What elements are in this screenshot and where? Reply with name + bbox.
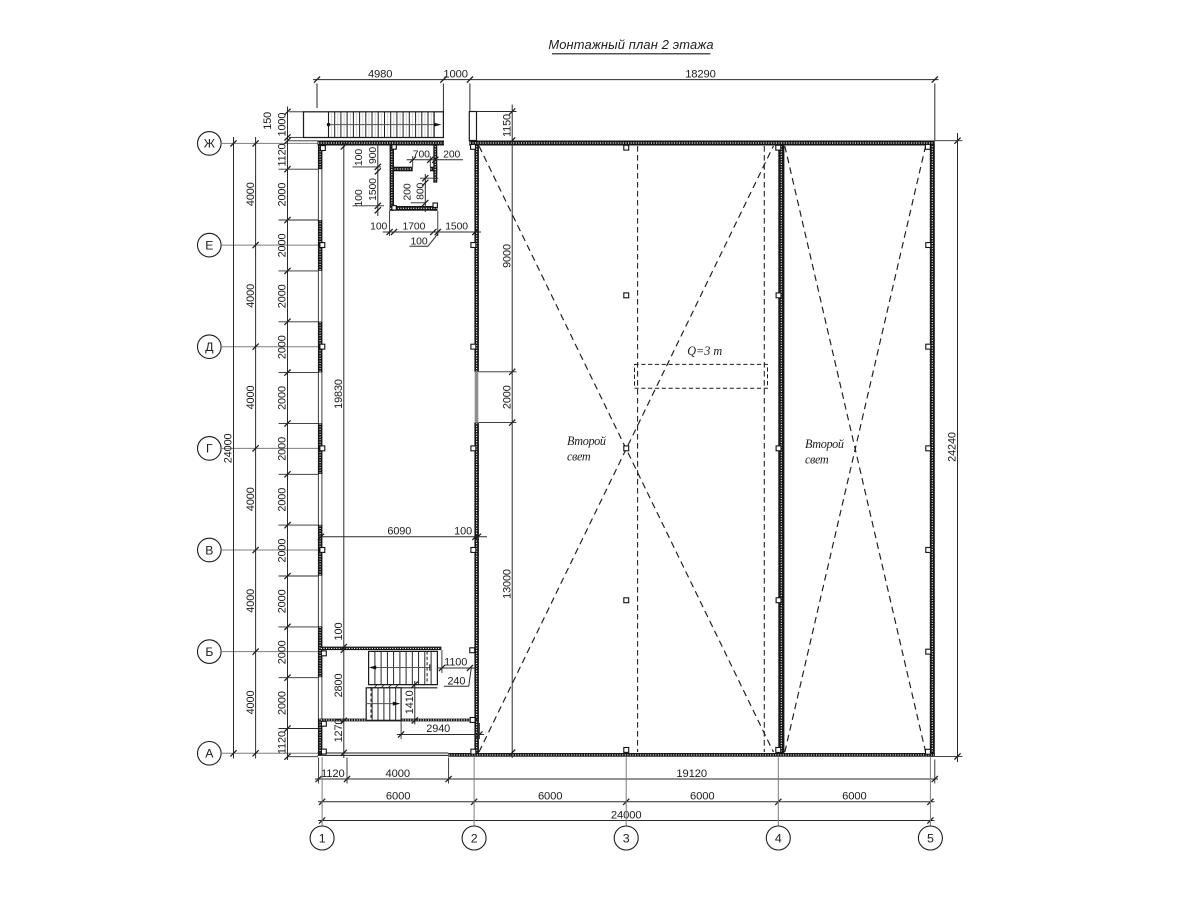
svg-text:Е: Е: [205, 238, 213, 252]
svg-text:4000: 4000: [245, 691, 257, 715]
svg-text:1410: 1410: [404, 690, 416, 714]
svg-text:6000: 6000: [538, 791, 563, 803]
svg-text:4000: 4000: [245, 487, 257, 511]
svg-text:2000: 2000: [277, 335, 289, 359]
svg-text:2000: 2000: [277, 284, 289, 308]
svg-text:100: 100: [354, 189, 365, 206]
svg-text:3: 3: [623, 831, 630, 845]
svg-text:А: А: [205, 747, 214, 761]
svg-text:В: В: [205, 543, 213, 557]
svg-text:2000: 2000: [277, 539, 289, 563]
svg-text:100: 100: [370, 222, 387, 233]
svg-text:1500: 1500: [445, 222, 468, 233]
svg-text:Ж: Ж: [204, 137, 216, 151]
svg-text:700: 700: [413, 150, 430, 161]
svg-text:4: 4: [775, 831, 782, 845]
svg-text:9000: 9000: [501, 244, 513, 268]
svg-text:2940: 2940: [426, 723, 450, 735]
svg-text:2000: 2000: [277, 183, 289, 207]
svg-text:200: 200: [403, 183, 414, 200]
svg-text:2000: 2000: [277, 589, 289, 613]
svg-text:2000: 2000: [277, 640, 289, 664]
svg-text:2: 2: [471, 831, 478, 845]
svg-text:Г: Г: [206, 442, 213, 456]
svg-text:6000: 6000: [690, 791, 715, 803]
svg-text:100: 100: [454, 525, 472, 537]
svg-text:4000: 4000: [245, 284, 257, 308]
svg-text:1120: 1120: [321, 768, 345, 780]
svg-text:2000: 2000: [277, 234, 289, 258]
svg-text:6090: 6090: [387, 525, 411, 537]
svg-text:4000: 4000: [245, 589, 257, 613]
svg-text:Второй: Второй: [567, 434, 606, 448]
svg-text:1: 1: [319, 831, 326, 845]
svg-text:6000: 6000: [386, 791, 411, 803]
svg-text:2800: 2800: [333, 674, 345, 698]
svg-text:2000: 2000: [277, 386, 289, 410]
svg-text:4000: 4000: [245, 182, 257, 206]
svg-text:Б: Б: [205, 645, 213, 659]
svg-text:24240: 24240: [947, 432, 959, 462]
svg-text:19830: 19830: [333, 379, 345, 409]
svg-text:18290: 18290: [685, 68, 716, 80]
svg-text:19120: 19120: [676, 768, 707, 780]
svg-text:800: 800: [415, 182, 426, 199]
svg-text:150: 150: [262, 112, 274, 130]
svg-text:1120: 1120: [277, 143, 289, 166]
svg-text:5: 5: [927, 831, 934, 845]
svg-text:6000: 6000: [842, 791, 867, 803]
svg-text:24000: 24000: [223, 433, 235, 463]
svg-text:1500: 1500: [368, 178, 379, 201]
svg-text:4980: 4980: [368, 68, 393, 80]
svg-text:1270: 1270: [333, 719, 345, 743]
svg-text:1100: 1100: [444, 657, 467, 669]
svg-text:900: 900: [368, 147, 379, 164]
svg-text:Монтажный план 2 этажа: Монтажный план 2 этажа: [548, 37, 713, 52]
svg-text:свет: свет: [567, 450, 591, 464]
svg-text:200: 200: [443, 150, 460, 161]
svg-text:100: 100: [333, 623, 345, 641]
svg-text:1000: 1000: [443, 68, 468, 80]
svg-text:свет: свет: [805, 453, 829, 467]
svg-text:100: 100: [354, 149, 365, 166]
svg-text:2000: 2000: [277, 488, 289, 512]
svg-text:2000: 2000: [277, 691, 289, 715]
svg-text:1700: 1700: [403, 222, 426, 233]
svg-text:4000: 4000: [386, 768, 411, 780]
svg-text:1150: 1150: [501, 114, 513, 137]
svg-text:2000: 2000: [277, 437, 289, 461]
svg-text:13000: 13000: [501, 569, 513, 599]
svg-text:Q=3 т: Q=3 т: [687, 344, 722, 358]
svg-text:4000: 4000: [245, 386, 257, 410]
svg-text:Д: Д: [205, 340, 214, 354]
svg-text:1000: 1000: [277, 113, 289, 137]
svg-text:1120: 1120: [277, 731, 289, 754]
svg-text:2000: 2000: [501, 385, 513, 409]
svg-text:Второй: Второй: [805, 437, 844, 451]
